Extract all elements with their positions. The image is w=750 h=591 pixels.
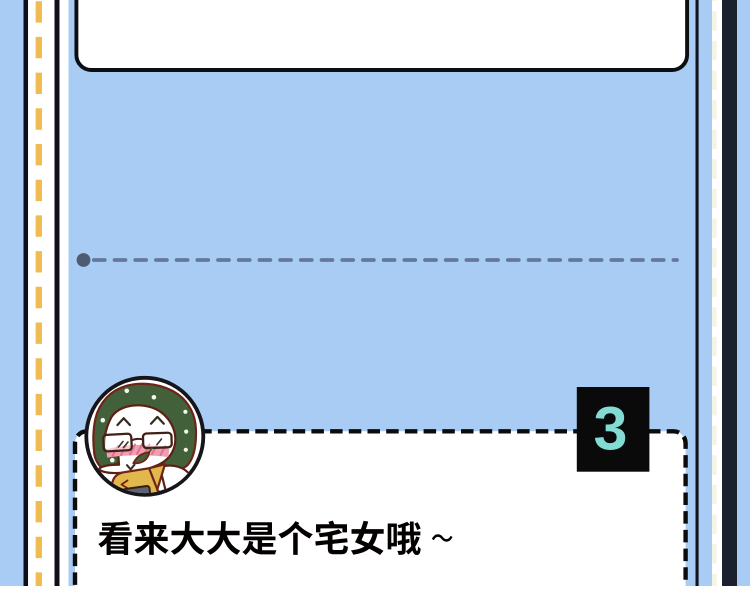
svg-text:3: 3 [594,395,628,463]
